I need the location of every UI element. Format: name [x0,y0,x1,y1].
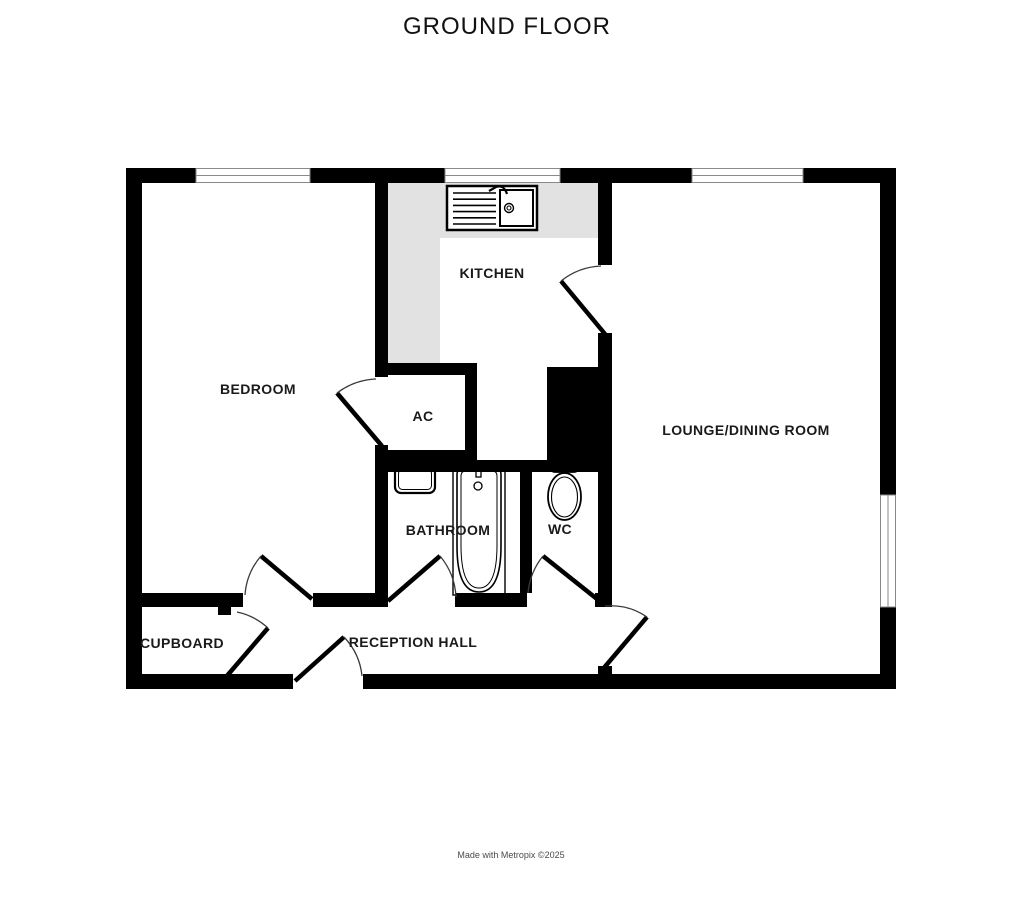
footer-credit: Made with Metropix ©2025 [457,850,564,860]
room-label-bathroom: BATHROOM [406,522,491,538]
room-label-cupboard: CUPBOARD [140,635,224,651]
room-label-wc: WC [548,521,572,537]
kitchen-sink-icon [447,186,537,230]
room-label-ac: AC [412,408,433,424]
door-wc [528,556,597,599]
window [692,169,803,183]
door-ac [337,379,382,446]
door-bathroom [388,556,456,601]
door-kitchen [561,266,605,334]
window [196,169,310,183]
floorplan-page: GROUND FLOOR [0,0,1024,899]
room-label-bedroom: BEDROOM [220,381,296,397]
door-cupboard [226,612,268,677]
window [445,169,560,183]
door-bedroom [245,556,312,599]
floorplan-drawing [0,0,1024,899]
room-label-lounge: LOUNGE/DINING ROOM [662,422,829,438]
window [881,495,896,607]
room-label-reception-hall: RECEPTION HALL [349,634,478,650]
room-label-kitchen: KITCHEN [459,265,524,281]
door-lounge [603,606,647,669]
